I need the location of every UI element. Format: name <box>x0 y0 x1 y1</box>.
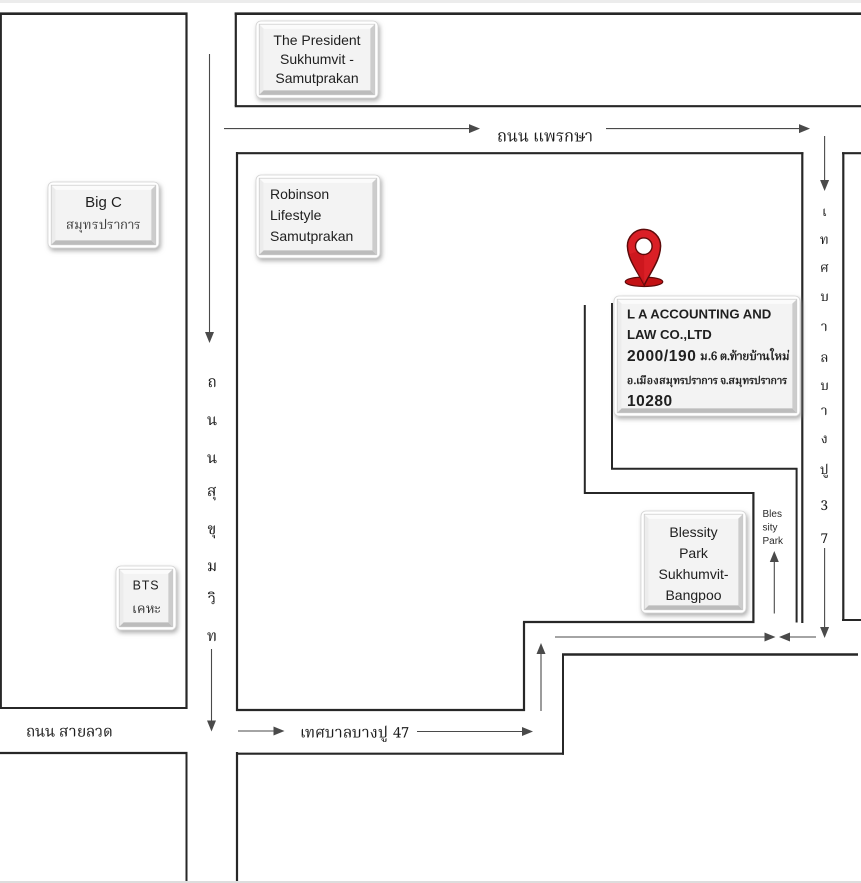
svg-text:Blessity: Blessity <box>669 524 717 540</box>
svg-text:Sukhumvit-: Sukhumvit- <box>658 566 728 582</box>
svg-text:Big C: Big C <box>85 194 122 211</box>
svg-text:The President: The President <box>273 32 360 48</box>
svg-text:Park: Park <box>763 536 785 547</box>
svg-text:Samutprakan: Samutprakan <box>270 228 353 244</box>
svg-text:Robinson: Robinson <box>270 186 329 202</box>
svg-text:LAW CO.,LTD: LAW CO.,LTD <box>627 327 712 342</box>
svg-text:L A ACCOUNTING AND: L A ACCOUNTING AND <box>627 307 771 322</box>
svg-text:Bles: Bles <box>763 509 782 520</box>
svg-text:2000/190: 2000/190 <box>627 348 696 365</box>
svg-text:Park: Park <box>679 545 709 561</box>
svg-text:BTS: BTS <box>133 579 160 593</box>
svg-text:Sukhumvit -: Sukhumvit - <box>280 51 354 67</box>
svg-text:Bangpoo: Bangpoo <box>665 587 721 603</box>
svg-text:10280: 10280 <box>627 393 673 410</box>
svg-text:Samutprakan: Samutprakan <box>275 70 358 86</box>
svg-text:sity: sity <box>763 523 778 534</box>
svg-text:Lifestyle: Lifestyle <box>270 207 322 223</box>
